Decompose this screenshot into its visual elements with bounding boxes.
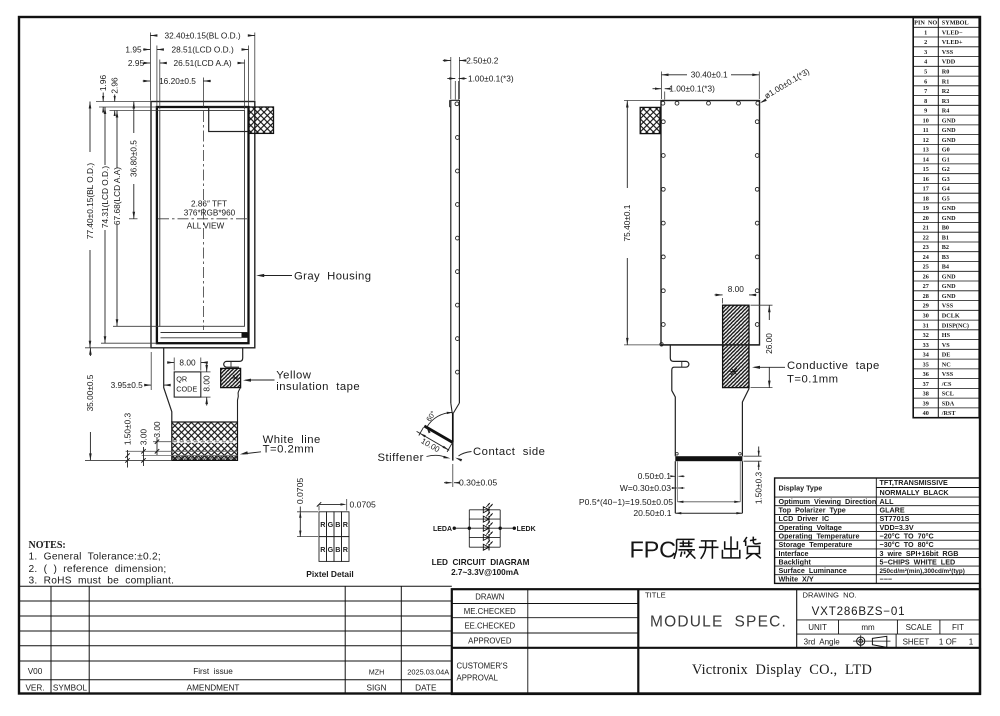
svg-text:NC: NC — [942, 361, 951, 368]
svg-text:VSS: VSS — [942, 49, 954, 56]
svg-text:20: 20 — [923, 215, 929, 222]
svg-text:VXT286BZS−01: VXT286BZS−01 — [812, 605, 906, 618]
svg-text:VLED−: VLED− — [942, 30, 963, 37]
svg-text:FPC: FPC — [630, 537, 677, 563]
svg-text:39: 39 — [923, 400, 929, 407]
svg-text:VDD: VDD — [942, 59, 956, 66]
svg-text:27: 27 — [923, 283, 929, 290]
svg-text:R: R — [320, 545, 326, 554]
svg-text:6: 6 — [924, 78, 927, 85]
svg-text:4: 4 — [924, 59, 927, 66]
svg-text:38: 38 — [923, 391, 929, 398]
svg-text:3.00: 3.00 — [152, 421, 162, 438]
svg-text:30.40±0.1: 30.40±0.1 — [691, 70, 728, 80]
svg-text:DISP(NC): DISP(NC) — [942, 322, 969, 329]
svg-text:17: 17 — [923, 186, 929, 193]
svg-text:SIGN: SIGN — [366, 683, 386, 692]
svg-text:DRAWING NO.: DRAWING NO. — [803, 590, 857, 599]
svg-text:26: 26 — [923, 274, 929, 281]
svg-text:16.20±0.5: 16.20±0.5 — [159, 76, 196, 86]
svg-text:20.50±0.1: 20.50±0.1 — [633, 508, 671, 518]
svg-text:APPROVED: APPROVED — [468, 636, 512, 645]
svg-text:5−CHIPS WHITE LED: 5−CHIPS WHITE LED — [880, 557, 956, 566]
svg-text:8.00: 8.00 — [179, 357, 196, 367]
svg-text:32: 32 — [923, 332, 929, 339]
svg-text:28.51(LCD O.D.): 28.51(LCD O.D.) — [171, 44, 233, 54]
svg-text:SCL: SCL — [942, 391, 954, 398]
svg-text:/CS: /CS — [941, 381, 952, 388]
svg-text:14: 14 — [923, 156, 929, 163]
svg-text:LCD Driver IC: LCD Driver IC — [779, 514, 830, 523]
svg-text:B: B — [335, 520, 340, 529]
svg-text:2: 2 — [924, 39, 927, 46]
svg-text:15: 15 — [923, 166, 929, 173]
svg-text:UNIT: UNIT — [808, 623, 827, 632]
svg-text:GND: GND — [942, 117, 956, 124]
svg-text:T=0.2mm: T=0.2mm — [263, 443, 315, 455]
svg-text:R: R — [343, 545, 349, 554]
svg-text:8: 8 — [924, 98, 927, 105]
svg-text:G2: G2 — [942, 166, 950, 173]
svg-text:0.50±0.1: 0.50±0.1 — [638, 471, 672, 481]
svg-text:DCLK: DCLK — [942, 313, 960, 320]
svg-text:26.51(LCD A.A): 26.51(LCD A.A) — [174, 58, 232, 68]
svg-text:Conductive tape: Conductive tape — [787, 360, 880, 372]
svg-text:3. RoHS must be compliant.: 3. RoHS must be compliant. — [29, 576, 175, 587]
svg-text:B1: B1 — [942, 234, 949, 241]
svg-text:FIT: FIT — [952, 623, 964, 632]
svg-text:R4: R4 — [942, 108, 950, 115]
svg-text:R: R — [343, 520, 349, 529]
svg-text:W=0.30±0.03: W=0.30±0.03 — [620, 483, 672, 493]
svg-text:23: 23 — [923, 244, 929, 251]
svg-text:1.50±0.3: 1.50±0.3 — [754, 472, 764, 505]
svg-text:32.40±0.15(BL O.D.): 32.40±0.15(BL O.D.) — [164, 30, 240, 40]
svg-text:24: 24 — [923, 254, 929, 261]
svg-text:B4: B4 — [942, 264, 949, 271]
svg-text:18: 18 — [923, 195, 929, 202]
svg-text:NOTES:: NOTES: — [29, 540, 66, 551]
svg-text:0.30±0.05: 0.30±0.05 — [459, 478, 497, 488]
svg-text:1.00±0.1(*3): 1.00±0.1(*3) — [669, 84, 715, 94]
svg-text:2025.03.04A: 2025.03.04A — [407, 667, 449, 676]
svg-text:3rd Angle: 3rd Angle — [804, 637, 841, 646]
svg-text:8.00: 8.00 — [202, 375, 212, 392]
svg-text:GND: GND — [942, 205, 956, 212]
svg-text:1.95: 1.95 — [125, 44, 142, 54]
svg-text:GND: GND — [942, 283, 956, 290]
svg-text:2.86″ TFT: 2.86″ TFT — [191, 200, 227, 209]
svg-text:−30°C TO 80°C: −30°C TO 80°C — [880, 540, 934, 549]
svg-text:DE: DE — [942, 352, 951, 359]
svg-text:3.95±0.5: 3.95±0.5 — [111, 380, 144, 390]
svg-text:CUSTOMER'S: CUSTOMER'S — [457, 661, 508, 670]
svg-text:2.7~3.3V@100mA: 2.7~3.3V@100mA — [451, 568, 519, 577]
svg-text:EE.CHECKED: EE.CHECKED — [464, 621, 515, 630]
svg-text:ST7701S: ST7701S — [880, 514, 910, 523]
svg-text:G3: G3 — [942, 176, 950, 183]
svg-text:GND: GND — [942, 274, 956, 281]
svg-text:R: R — [320, 520, 326, 529]
svg-text:376*RGB*960: 376*RGB*960 — [184, 208, 236, 217]
svg-text:TITLE: TITLE — [645, 590, 666, 599]
svg-text:PIN NO: PIN NO — [914, 20, 937, 27]
svg-text:40: 40 — [923, 410, 929, 417]
svg-text:36: 36 — [923, 371, 929, 378]
svg-text:2. ( ) reference dimension: 2. ( ) reference dimension; — [29, 564, 167, 575]
svg-text:35.00±0.5: 35.00±0.5 — [85, 374, 95, 411]
svg-text:GND: GND — [942, 215, 956, 222]
svg-text:SDA: SDA — [942, 400, 955, 407]
svg-text:10: 10 — [923, 117, 929, 124]
svg-text:74.31(LCD O.D.): 74.31(LCD O.D.) — [100, 166, 110, 228]
svg-text:Display Type: Display Type — [779, 483, 823, 492]
svg-text:2.95: 2.95 — [128, 58, 145, 68]
svg-text:22: 22 — [923, 234, 929, 241]
svg-text:G1: G1 — [942, 156, 950, 163]
svg-text:2.96: 2.96 — [110, 77, 120, 94]
svg-text:28: 28 — [923, 293, 929, 300]
svg-text:SHEET: SHEET — [903, 637, 930, 646]
svg-text:White X/Y: White X/Y — [779, 575, 814, 584]
svg-text:7: 7 — [924, 88, 927, 95]
svg-text:Storage Temperature: Storage Temperature — [779, 540, 853, 549]
svg-text:VSS: VSS — [942, 371, 954, 378]
svg-text:34: 34 — [923, 352, 929, 359]
svg-text:67.68(LCD A.A): 67.68(LCD A.A) — [112, 167, 122, 225]
svg-text:/RST: /RST — [941, 410, 957, 417]
svg-text:1 OF: 1 OF — [939, 637, 957, 646]
svg-text:LEDK: LEDK — [517, 526, 536, 533]
svg-text:12: 12 — [923, 137, 929, 144]
svg-text:33: 33 — [923, 342, 929, 349]
svg-text:9: 9 — [924, 108, 927, 115]
svg-text:1. General Tolerance:±0.2;: 1. General Tolerance:±0.2; — [29, 552, 161, 563]
svg-text:1: 1 — [969, 637, 974, 646]
svg-text:QR: QR — [176, 375, 187, 384]
svg-text:3.00: 3.00 — [138, 429, 148, 446]
svg-text:TFT,TRANSMISSIVE: TFT,TRANSMISSIVE — [880, 478, 948, 487]
svg-text:1.00±0.1(*3): 1.00±0.1(*3) — [468, 73, 514, 83]
svg-text:0.0705: 0.0705 — [350, 499, 377, 509]
svg-text:B2: B2 — [942, 244, 949, 251]
svg-text:AMENDMENT: AMENDMENT — [187, 683, 240, 692]
svg-text:B: B — [335, 545, 340, 554]
svg-text:mm: mm — [861, 623, 875, 632]
svg-text:ALL VIEW: ALL VIEW — [187, 221, 225, 230]
svg-text:29: 29 — [923, 303, 929, 310]
svg-text:11: 11 — [923, 127, 929, 134]
svg-text:77.40±0.15(BL O.D.): 77.40±0.15(BL O.D.) — [85, 163, 95, 239]
svg-text:Victronix Display CO., LTD: Victronix Display CO., LTD — [692, 662, 872, 678]
svg-text:R0: R0 — [942, 69, 950, 76]
svg-text:G: G — [328, 545, 334, 554]
svg-text:VER.: VER. — [25, 683, 44, 692]
svg-text:Contact side: Contact side — [473, 446, 545, 458]
svg-text:13: 13 — [923, 147, 929, 154]
svg-text:37: 37 — [923, 381, 929, 388]
svg-text:G: G — [328, 520, 334, 529]
svg-text:GND: GND — [942, 293, 956, 300]
svg-text:GND: GND — [942, 127, 956, 134]
svg-text:16: 16 — [923, 176, 929, 183]
svg-text:R3: R3 — [942, 98, 950, 105]
svg-text:SYMBOL: SYMBOL — [942, 20, 969, 27]
svg-text:VLED+: VLED+ — [942, 39, 963, 46]
svg-text:G5: G5 — [942, 195, 950, 202]
svg-text:GND: GND — [942, 137, 956, 144]
svg-text:−−−: −−− — [880, 575, 893, 584]
svg-text:T=0.1mm: T=0.1mm — [787, 373, 839, 385]
svg-text:35: 35 — [923, 361, 929, 368]
svg-text:30: 30 — [923, 313, 929, 320]
svg-text:CODE: CODE — [176, 384, 197, 393]
svg-text:75.40±0.1: 75.40±0.1 — [622, 204, 632, 241]
svg-text:1: 1 — [924, 30, 927, 37]
svg-text:8.00: 8.00 — [728, 284, 745, 294]
svg-text:B3: B3 — [942, 254, 949, 261]
svg-text:MZH: MZH — [369, 667, 385, 676]
svg-text:Yellow: Yellow — [276, 370, 312, 382]
svg-text:DRAWN: DRAWN — [475, 593, 504, 602]
svg-text:VS: VS — [942, 342, 950, 349]
svg-text:APPROVAL: APPROVAL — [457, 673, 499, 682]
svg-text:Stiffener: Stiffener — [378, 452, 424, 464]
svg-text:1.50±0.3: 1.50±0.3 — [122, 413, 132, 446]
svg-text:P0.5*(40−1)=19.50±0.05: P0.5*(40−1)=19.50±0.05 — [579, 497, 673, 507]
svg-text:G4: G4 — [942, 186, 950, 193]
svg-text:25: 25 — [923, 264, 929, 271]
svg-text:ME.CHECKED: ME.CHECKED — [464, 607, 516, 616]
svg-text:19: 19 — [923, 205, 929, 212]
svg-text:2.50±0.2: 2.50±0.2 — [466, 55, 499, 65]
svg-text:First issue: First issue — [193, 667, 233, 676]
svg-text:insulation tape: insulation tape — [276, 381, 360, 393]
svg-text:V00: V00 — [28, 667, 43, 676]
svg-text:NORMALLY BLACK: NORMALLY BLACK — [880, 488, 950, 497]
svg-text:B0: B0 — [942, 225, 949, 232]
svg-text:DATE: DATE — [415, 683, 437, 692]
svg-text:G0: G0 — [942, 147, 950, 154]
svg-text:5: 5 — [924, 69, 927, 76]
svg-text:26.00: 26.00 — [764, 333, 774, 354]
svg-text:250cd/m²(min),300cd/m²(typ): 250cd/m²(min),300cd/m²(typ) — [880, 568, 965, 575]
svg-text:HS: HS — [942, 332, 951, 339]
svg-text:Pixtel Detail: Pixtel Detail — [306, 569, 353, 579]
svg-text:R1: R1 — [942, 78, 950, 85]
svg-text:21: 21 — [923, 225, 929, 232]
svg-text:1.96: 1.96 — [98, 75, 108, 92]
svg-text:LED CIRCUIT DIAGRAM: LED CIRCUIT DIAGRAM — [432, 558, 530, 567]
svg-text:VSS: VSS — [942, 303, 954, 310]
svg-text:31: 31 — [923, 322, 929, 329]
svg-text:MODULE SPEC.: MODULE SPEC. — [650, 614, 787, 631]
svg-text:3: 3 — [924, 49, 927, 56]
svg-text:Gray Housing: Gray Housing — [294, 270, 371, 282]
svg-text:SYMBOL: SYMBOL — [53, 683, 88, 692]
svg-text:36.80±0.5: 36.80±0.5 — [129, 140, 139, 177]
svg-text:0.0705: 0.0705 — [295, 478, 305, 505]
svg-text:SCALE: SCALE — [906, 623, 932, 632]
svg-text:LEDA: LEDA — [433, 526, 452, 533]
svg-text:R2: R2 — [942, 88, 950, 95]
